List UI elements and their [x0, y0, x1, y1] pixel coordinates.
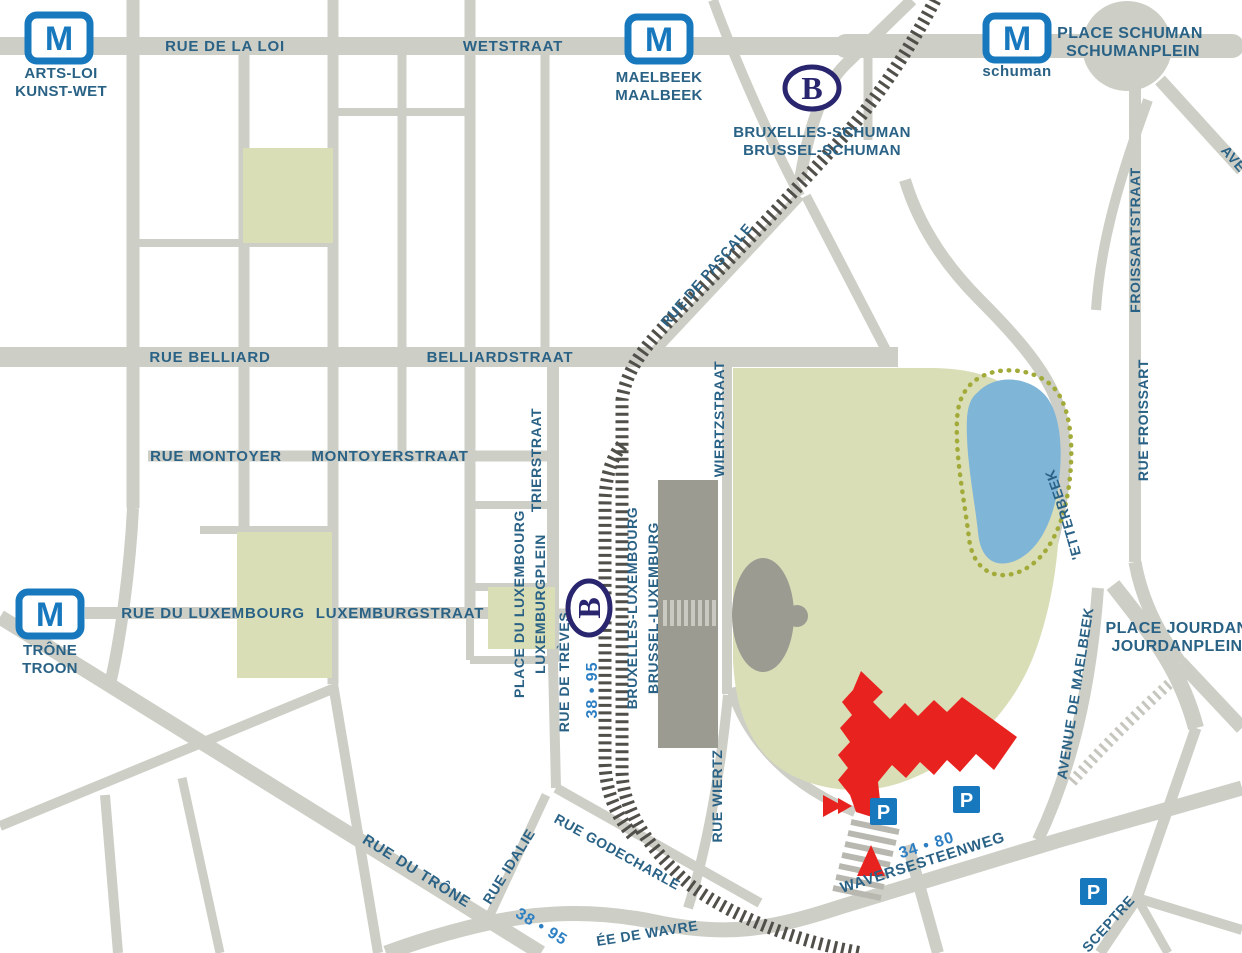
- street-label-montoyerstraat: MONTOYERSTRAAT: [311, 448, 468, 465]
- road-segment: [806, 196, 888, 354]
- station-label-brussel-luxemburg: BRUSSEL-LUXEMBURG: [645, 522, 661, 694]
- metro-station-schuman[interactable]: M schuman: [982, 16, 1051, 80]
- street-label-froissartstraat: FROISSARTSTRAAT: [1127, 167, 1143, 313]
- place-label-jourdan-nl: JOURDANPLEIN: [1111, 638, 1242, 655]
- metro-station-maelbeek[interactable]: M MAELBEEK MAALBEEK: [615, 17, 702, 104]
- parking-icon-letter: P: [1087, 882, 1100, 904]
- station-label-nl: MAALBEEK: [615, 87, 702, 104]
- station-label-nl: KUNST-WET: [15, 83, 107, 100]
- street-label-rue-de-la-loi: RUE DE LA LOI: [165, 38, 285, 55]
- place-label-luxembourg-fr: PLACE DU LUXEMBOURG: [511, 510, 527, 698]
- metro-icon-letter: M: [45, 20, 73, 58]
- station-label-nl: TROON: [22, 660, 78, 677]
- metro-icon-letter: M: [645, 21, 673, 59]
- street-label-rue-montoyer: RUE MONTOYER: [150, 448, 282, 465]
- street-label-rue-froissart: RUE FROISSART: [1135, 359, 1151, 481]
- place-label-schuman-nl: SCHUMANPLEIN: [1066, 43, 1200, 60]
- street-label-rue-wiertz: RUE WIERTZ: [709, 749, 725, 842]
- parking-icon-letter: P: [960, 790, 973, 812]
- place-label-schuman-fr: PLACE SCHUMAN: [1057, 25, 1203, 42]
- map-canvas: RUE DE LA LOI WETSTRAAT RUE BELLIARD BEL…: [0, 0, 1242, 953]
- road-segment: [0, 690, 330, 826]
- street-label-rue-du-trone: RUE DU TRÔNE: [359, 830, 474, 911]
- metro-station-trone[interactable]: M TRÔNE TROON: [19, 592, 81, 677]
- street-label-rue-de-treves: RUE DE TRÈVES: [556, 612, 572, 733]
- road-segment: [182, 778, 220, 953]
- street-label-wetstraat: WETSTRAAT: [463, 38, 563, 55]
- place-label-luxembourg-nl: LUXEMBURGPLEIN: [532, 534, 548, 674]
- rail-icon-letter: B: [571, 597, 607, 618]
- street-label-rue-de-pascale: RUE DE PASCALE: [657, 220, 755, 329]
- station-label-fr: TRÔNE: [23, 641, 77, 659]
- green-block: [243, 148, 333, 243]
- parking-icon-sceptre[interactable]: P: [1080, 878, 1107, 905]
- street-label-wiertzstraat: WIERTZSTRAAT: [711, 361, 727, 478]
- road-segment: [333, 684, 378, 953]
- bus-route-38-95: 38 • 95: [584, 661, 601, 718]
- street-label-belliardstraat: BELLIARDSTRAAT: [427, 349, 574, 366]
- station-label-nl: BRUSSEL-SCHUMAN: [743, 142, 901, 159]
- road-segment: [105, 795, 118, 953]
- station-label: schuman: [982, 63, 1051, 80]
- station-label-fr: BRUXELLES-SCHUMAN: [733, 124, 911, 141]
- street-label-rue-belliard: RUE BELLIARD: [149, 349, 270, 366]
- metro-icon-letter: M: [36, 596, 64, 634]
- place-label-jourdan-fr: PLACE JOURDAN: [1106, 620, 1242, 637]
- park-building-annex: [786, 605, 808, 627]
- parking-icon-west[interactable]: P: [870, 798, 897, 825]
- street-label-luxemburgstraat: LUXEMBURGSTRAAT: [316, 605, 484, 622]
- street-label-rue-du-luxembourg: RUE DU LUXEMBOURG: [121, 605, 305, 622]
- street-label-trierstraat: TRIERSTRAAT: [528, 408, 544, 512]
- rail-icon-letter: B: [801, 70, 822, 106]
- parking-icon-letter: P: [877, 802, 890, 824]
- station-label-bruxelles-luxembourg: BRUXELLES-LUXEMBOURG: [624, 507, 640, 710]
- station-label-fr: ARTS-LOI: [24, 65, 97, 82]
- street-label-rue-idalie: RUE IDALIE: [479, 826, 538, 907]
- station-label-fr: MAELBEEK: [616, 69, 703, 86]
- parking-icon-east[interactable]: P: [953, 786, 980, 813]
- rail-station-bruxelles-luxembourg[interactable]: B: [568, 581, 610, 635]
- road-segment: [110, 508, 133, 684]
- park-building: [732, 558, 794, 672]
- metro-icon-letter: M: [1003, 20, 1031, 58]
- metro-station-arts-loi[interactable]: M ARTS-LOI KUNST-WET: [15, 15, 107, 100]
- road-pascale: [652, 196, 800, 354]
